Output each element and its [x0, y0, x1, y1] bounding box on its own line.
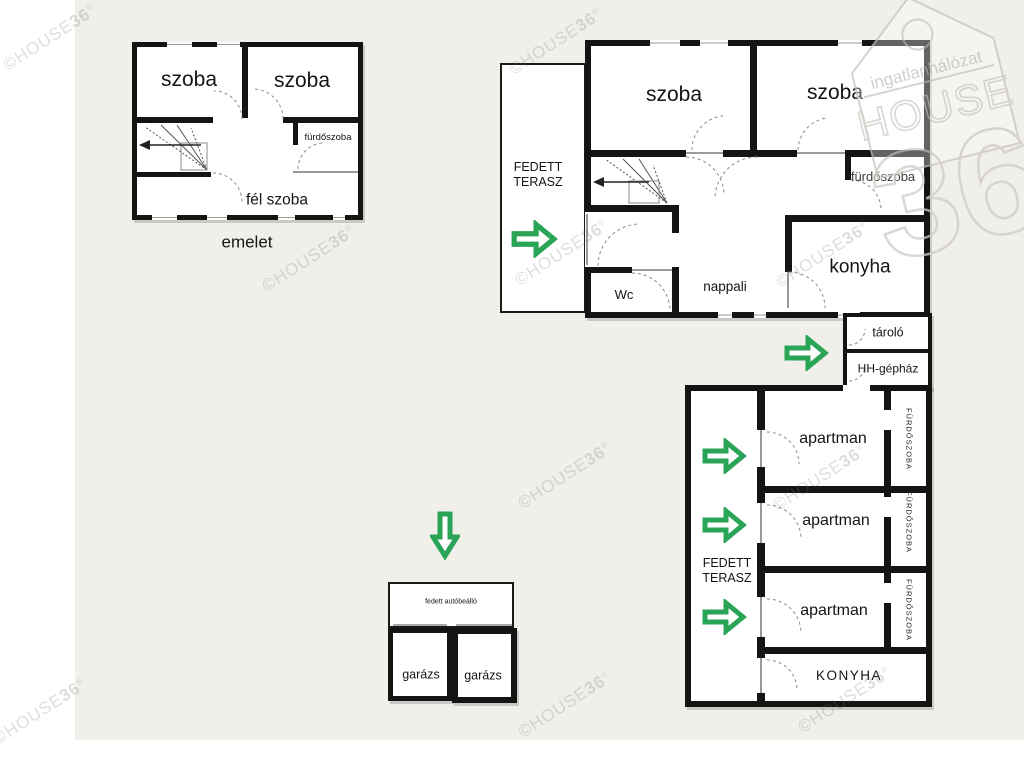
window-mark: [650, 40, 680, 46]
room-label-carport: fedett autóbeálló: [425, 599, 477, 608]
terrace-label-line2: TERASZ: [702, 571, 751, 586]
green-arrow-right-icon: [701, 599, 747, 635]
carport-box: fedett autóbeálló: [388, 582, 514, 628]
room-label-garazs: garázs: [402, 667, 440, 682]
door-arc: [213, 173, 242, 202]
room-label-fel-szoba: fél szoba: [246, 192, 308, 211]
room-label-furdoszoba-vertical: FÜRDŐSZOBA: [905, 579, 914, 641]
door-arc: [686, 157, 724, 195]
arrow-shape: [705, 511, 743, 539]
watermark-text: ©HOUSE: [0, 690, 66, 749]
window-mark: [700, 40, 728, 46]
door-arc: [715, 157, 757, 199]
door-arc: [767, 660, 797, 690]
room-label-fedett-terasz: FEDETT TERASZ: [702, 556, 751, 587]
room-label-szoba: szoba: [274, 68, 330, 94]
door-arc: [767, 432, 799, 464]
green-arrow-right-icon: [701, 507, 747, 543]
floor-caption-emelet: emelet: [221, 233, 272, 254]
room-label-furdoszoba-vertical: FÜRDŐSZOBA: [905, 491, 914, 553]
floorplan-canvas: szoba szoba fürdőszoba fél szoba emelet …: [0, 0, 1024, 770]
green-arrow-down-icon: [430, 510, 460, 560]
room-label-szoba: szoba: [646, 82, 702, 108]
terrace-label-line1: FEDETT: [702, 556, 751, 571]
room-label-tarolo: tároló: [872, 325, 903, 340]
door-arc: [214, 91, 242, 119]
room-label-furdoszoba-vertical: FÜRDŐSZOBA: [905, 408, 914, 470]
room-label-apartman: apartman: [800, 601, 868, 621]
room-label-furdoszoba: fürdőszoba: [304, 132, 351, 144]
apartments-plan: FEDETT TERASZ apartman apartman apartman…: [685, 385, 932, 707]
window-mark: [333, 215, 345, 220]
window-mark: [152, 215, 177, 220]
room-label-szoba: szoba: [161, 67, 217, 93]
room-label-fedett-terasz: FEDETT TERASZ: [513, 160, 562, 191]
room-label-wc: Wc: [615, 287, 634, 303]
room-label-nappali: nappali: [703, 279, 747, 295]
window-mark: [217, 42, 240, 47]
watermark-text: ©HOUSE: [0, 16, 76, 75]
window-mark: [278, 215, 295, 220]
arrow-shape: [787, 339, 825, 367]
door-arc: [767, 599, 801, 633]
garage-left-box: garázs: [388, 628, 452, 701]
terrace-label-line2: TERASZ: [513, 175, 562, 190]
door-arc: [849, 329, 865, 345]
room-label-hh-gephaz: HH-gépház: [858, 362, 919, 377]
utility-box: tároló HH-gépház: [843, 313, 932, 389]
window-mark: [718, 312, 732, 318]
window-mark: [207, 215, 227, 220]
garage-door-line: [393, 624, 447, 626]
garage-right-box: garázs: [452, 628, 517, 703]
door-arc: [298, 143, 324, 169]
door-arc: [632, 273, 670, 310]
upper-floor-plan: szoba szoba fürdőszoba fél szoba: [132, 42, 363, 220]
room-label-garazs: garázs: [464, 668, 502, 683]
green-arrow-right-icon: [783, 335, 829, 371]
door-arc: [798, 118, 827, 150]
door-arc: [692, 116, 723, 150]
window-mark: [754, 312, 766, 318]
arrow-shape: [705, 603, 743, 631]
terrace-label-line1: FEDETT: [513, 160, 562, 175]
room-label-apartman: apartman: [802, 511, 870, 531]
logo-group: ingatlanhálózat HOUSE 36: [835, 0, 1024, 293]
house36-logo: ingatlanhálózat HOUSE 36: [835, 0, 1024, 315]
green-arrow-right-icon: [701, 438, 747, 474]
window-mark: [167, 42, 192, 47]
garage-door-line: [456, 624, 512, 626]
arrow-shape: [705, 442, 743, 470]
arrow-shape: [433, 514, 457, 556]
